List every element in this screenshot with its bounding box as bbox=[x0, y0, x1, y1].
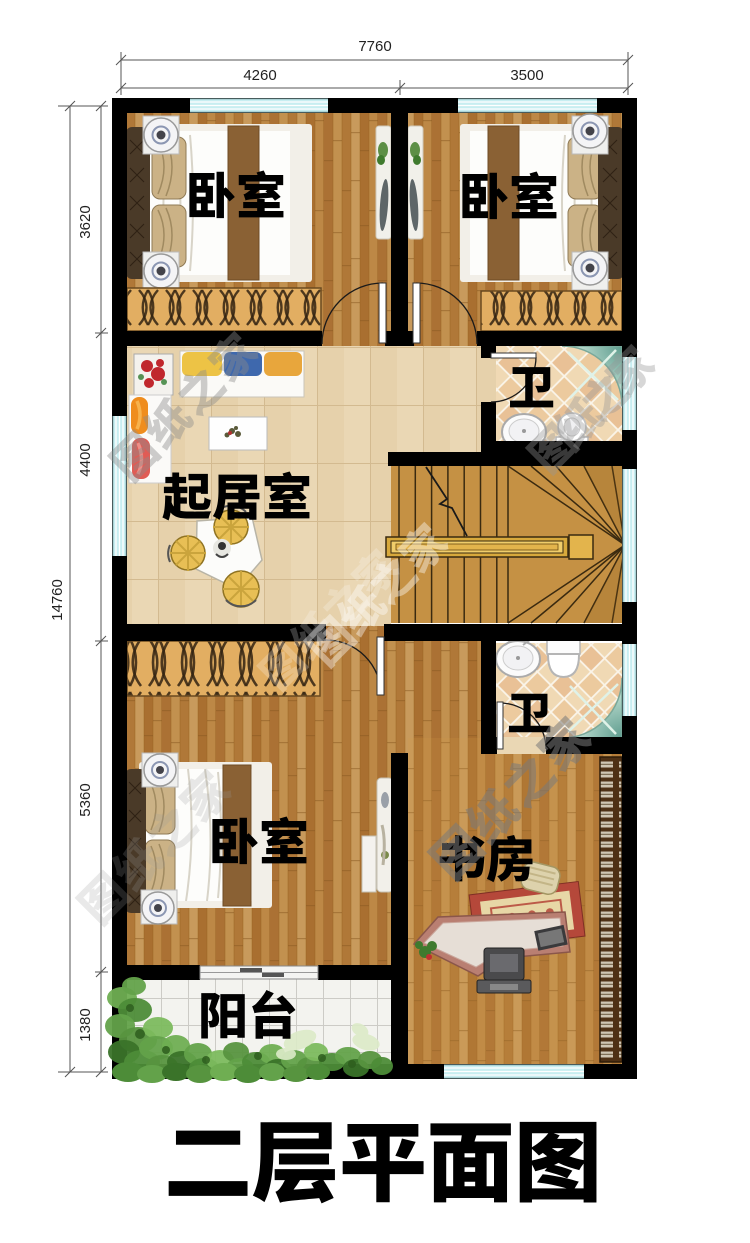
svg-text:14760: 14760 bbox=[49, 579, 66, 621]
svg-text:5360: 5360 bbox=[77, 783, 94, 816]
svg-text:7760: 7760 bbox=[358, 38, 391, 55]
svg-text:1380: 1380 bbox=[77, 1008, 94, 1041]
svg-text:3500: 3500 bbox=[510, 67, 543, 84]
svg-text:4400: 4400 bbox=[77, 443, 94, 476]
svg-text:4260: 4260 bbox=[243, 67, 276, 84]
svg-text:3620: 3620 bbox=[77, 205, 94, 238]
